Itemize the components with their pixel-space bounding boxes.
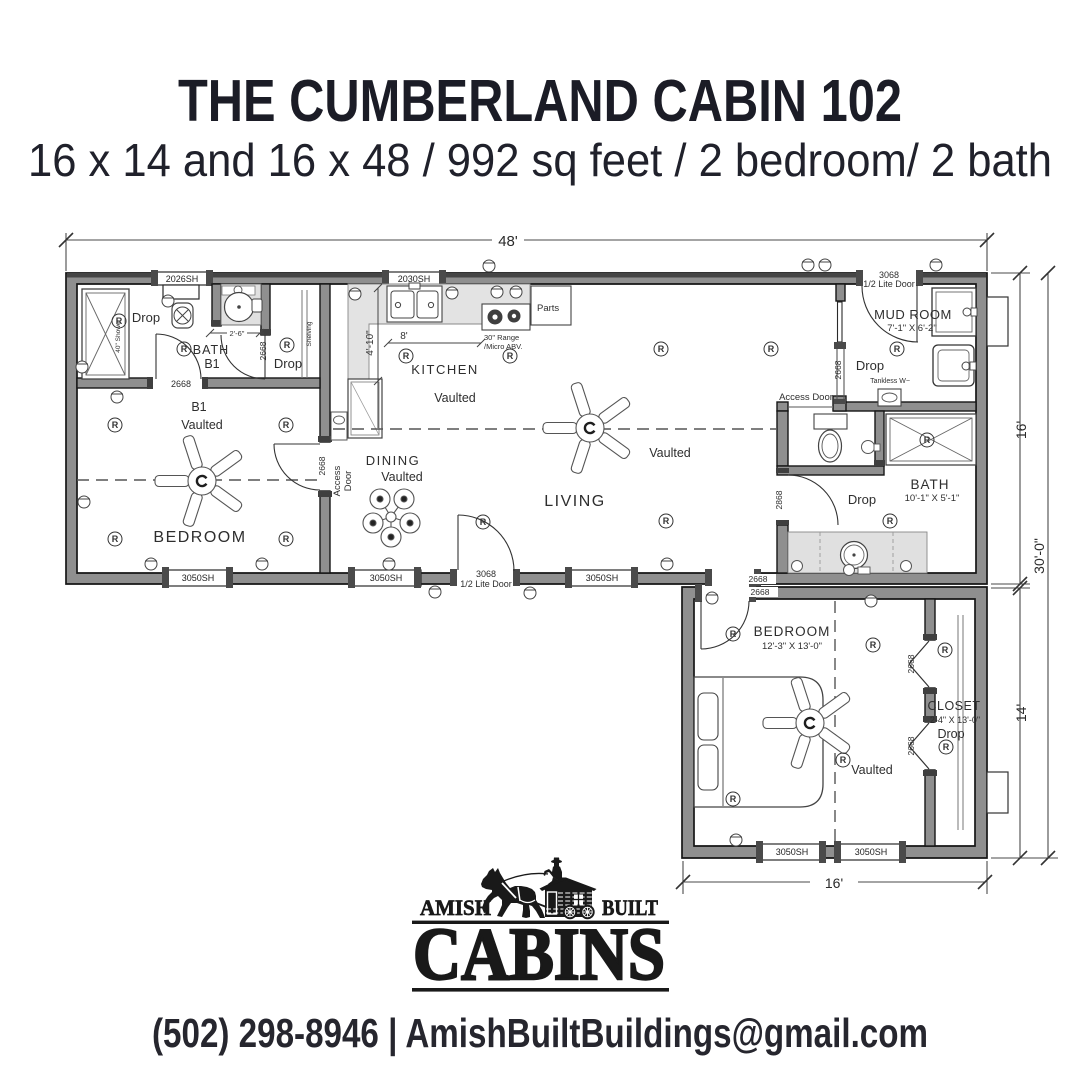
svg-text:R: R bbox=[403, 351, 410, 361]
svg-text:R: R bbox=[943, 742, 950, 752]
svg-text:R: R bbox=[840, 755, 847, 765]
svg-text:1/2 Lite Door: 1/2 Lite Door bbox=[460, 579, 512, 589]
svg-text:Door: Door bbox=[343, 471, 354, 492]
svg-text:Vaulted: Vaulted bbox=[851, 763, 893, 777]
svg-text:Vaulted: Vaulted bbox=[434, 391, 476, 405]
svg-text:2668: 2668 bbox=[749, 574, 768, 584]
svg-text:R: R bbox=[924, 435, 931, 445]
svg-text:Vaulted: Vaulted bbox=[381, 470, 423, 484]
svg-text:R: R bbox=[870, 640, 877, 650]
svg-text:16': 16' bbox=[1013, 421, 1029, 439]
svg-text:3050SH: 3050SH bbox=[776, 847, 809, 857]
svg-text:R: R bbox=[284, 340, 291, 350]
svg-text:R: R bbox=[181, 344, 188, 354]
svg-text:(502) 298-8946 | AmishBuiltBui: (502) 298-8946 | AmishBuiltBuildings@gma… bbox=[152, 1010, 928, 1056]
svg-text:2668: 2668 bbox=[258, 341, 268, 360]
svg-text:2-4" X 13'-0": 2-4" X 13'-0" bbox=[930, 715, 980, 725]
svg-text:Vaulted: Vaulted bbox=[181, 418, 223, 432]
svg-text:/Micro ABV.: /Micro ABV. bbox=[484, 342, 523, 351]
svg-text:Drop: Drop bbox=[937, 727, 964, 741]
svg-text:12'-3" X 13'-0": 12'-3" X 13'-0" bbox=[762, 641, 822, 652]
svg-text:3068: 3068 bbox=[476, 569, 496, 579]
svg-text:R: R bbox=[283, 420, 290, 430]
svg-text:2868: 2868 bbox=[774, 490, 784, 509]
svg-text:B1: B1 bbox=[204, 357, 219, 371]
svg-text:R: R bbox=[116, 316, 123, 326]
svg-text:Parts: Parts bbox=[537, 303, 559, 314]
svg-text:R: R bbox=[730, 629, 737, 639]
svg-text:16 x 14 and 16 x 48 / 992 sq f: 16 x 14 and 16 x 48 / 992 sq feet / 2 be… bbox=[28, 134, 1052, 186]
svg-text:16': 16' bbox=[825, 875, 843, 891]
svg-text:3050SH: 3050SH bbox=[370, 573, 403, 583]
svg-text:DINING: DINING bbox=[366, 453, 421, 468]
svg-text:B1: B1 bbox=[191, 400, 206, 414]
svg-text:BEDROOM: BEDROOM bbox=[754, 624, 831, 639]
svg-text:R: R bbox=[663, 516, 670, 526]
svg-text:MUD ROOM: MUD ROOM bbox=[874, 307, 952, 322]
svg-text:Access Door: Access Door bbox=[779, 392, 833, 403]
svg-text:14': 14' bbox=[1013, 704, 1029, 722]
svg-text:R: R bbox=[730, 794, 737, 804]
svg-text:2668: 2668 bbox=[171, 379, 191, 389]
svg-text:1/2 Lite Door: 1/2 Lite Door bbox=[863, 279, 915, 289]
svg-text:7'-1" X 6'-2": 7'-1" X 6'-2" bbox=[887, 323, 936, 334]
svg-text:Shelving: Shelving bbox=[306, 321, 313, 346]
svg-text:Drop: Drop bbox=[132, 310, 160, 325]
svg-text:BEDROOM: BEDROOM bbox=[153, 529, 246, 546]
svg-text:Access: Access bbox=[332, 465, 343, 496]
svg-text:R: R bbox=[112, 534, 119, 544]
svg-text:8': 8' bbox=[400, 331, 408, 342]
svg-text:Drop: Drop bbox=[274, 356, 302, 371]
svg-text:CLOSET: CLOSET bbox=[927, 699, 980, 713]
svg-text:R: R bbox=[887, 516, 894, 526]
svg-text:2668: 2668 bbox=[833, 360, 843, 379]
svg-text:30" Range: 30" Range bbox=[484, 333, 519, 342]
svg-text:BATH: BATH bbox=[910, 477, 949, 492]
svg-text:Vaulted: Vaulted bbox=[649, 446, 691, 460]
svg-text:3050SH: 3050SH bbox=[182, 573, 215, 583]
svg-text:Tankless W−: Tankless W− bbox=[870, 378, 910, 385]
svg-text:2'-6": 2'-6" bbox=[230, 329, 245, 338]
svg-text:2026SH: 2026SH bbox=[166, 274, 199, 284]
svg-text:2668: 2668 bbox=[906, 736, 916, 755]
svg-text:R: R bbox=[894, 344, 901, 354]
svg-text:R: R bbox=[658, 344, 665, 354]
svg-text:3050SH: 3050SH bbox=[855, 847, 888, 857]
svg-text:Drop: Drop bbox=[856, 358, 884, 373]
svg-text:CABINS: CABINS bbox=[413, 914, 665, 996]
svg-text:R: R bbox=[480, 517, 487, 527]
svg-text:LIVING: LIVING bbox=[544, 493, 605, 510]
svg-text:KITCHEN: KITCHEN bbox=[411, 362, 479, 377]
svg-text:10'-1" X 5'-1": 10'-1" X 5'-1" bbox=[905, 493, 960, 504]
svg-text:4'-10": 4'-10" bbox=[365, 330, 376, 356]
svg-text:Drop: Drop bbox=[848, 492, 876, 507]
svg-text:R: R bbox=[283, 534, 290, 544]
svg-text:THE CUMBERLAND CABIN 102: THE CUMBERLAND CABIN 102 bbox=[178, 68, 902, 134]
svg-text:R: R bbox=[112, 420, 119, 430]
svg-text:2668: 2668 bbox=[317, 456, 327, 475]
svg-text:2668: 2668 bbox=[751, 587, 770, 597]
svg-text:BATH: BATH bbox=[193, 343, 229, 357]
svg-text:R: R bbox=[507, 351, 514, 361]
svg-text:R: R bbox=[768, 344, 775, 354]
svg-text:3050SH: 3050SH bbox=[586, 573, 619, 583]
svg-text:48': 48' bbox=[498, 233, 518, 250]
svg-text:2668: 2668 bbox=[906, 654, 916, 673]
svg-text:R: R bbox=[942, 645, 949, 655]
svg-text:30'-0": 30'-0" bbox=[1031, 538, 1047, 574]
